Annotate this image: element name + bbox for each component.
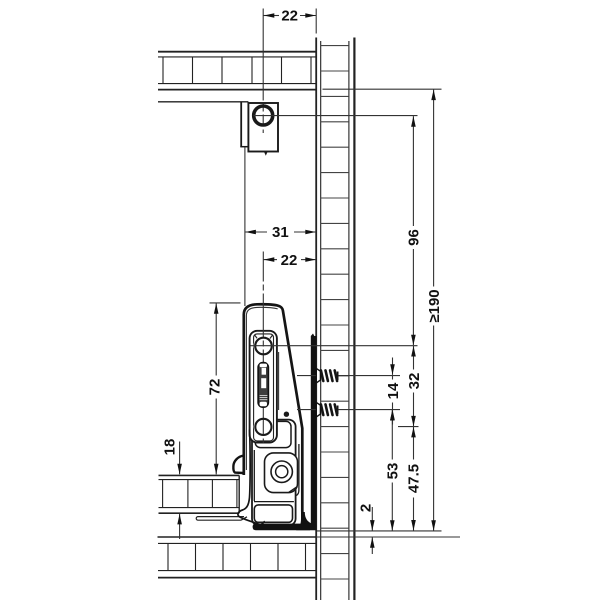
svg-text:31: 31 bbox=[272, 224, 289, 241]
svg-text:22: 22 bbox=[281, 252, 298, 269]
svg-text:72: 72 bbox=[207, 379, 224, 396]
svg-text:32: 32 bbox=[406, 373, 423, 390]
svg-text:≥190: ≥190 bbox=[426, 289, 443, 322]
svg-text:18: 18 bbox=[162, 439, 179, 456]
svg-text:14: 14 bbox=[385, 382, 402, 399]
svg-text:96: 96 bbox=[406, 229, 423, 246]
svg-text:22: 22 bbox=[281, 8, 298, 25]
svg-text:53: 53 bbox=[385, 463, 402, 480]
svg-text:47.5: 47.5 bbox=[406, 464, 423, 493]
svg-text:2: 2 bbox=[357, 504, 374, 512]
